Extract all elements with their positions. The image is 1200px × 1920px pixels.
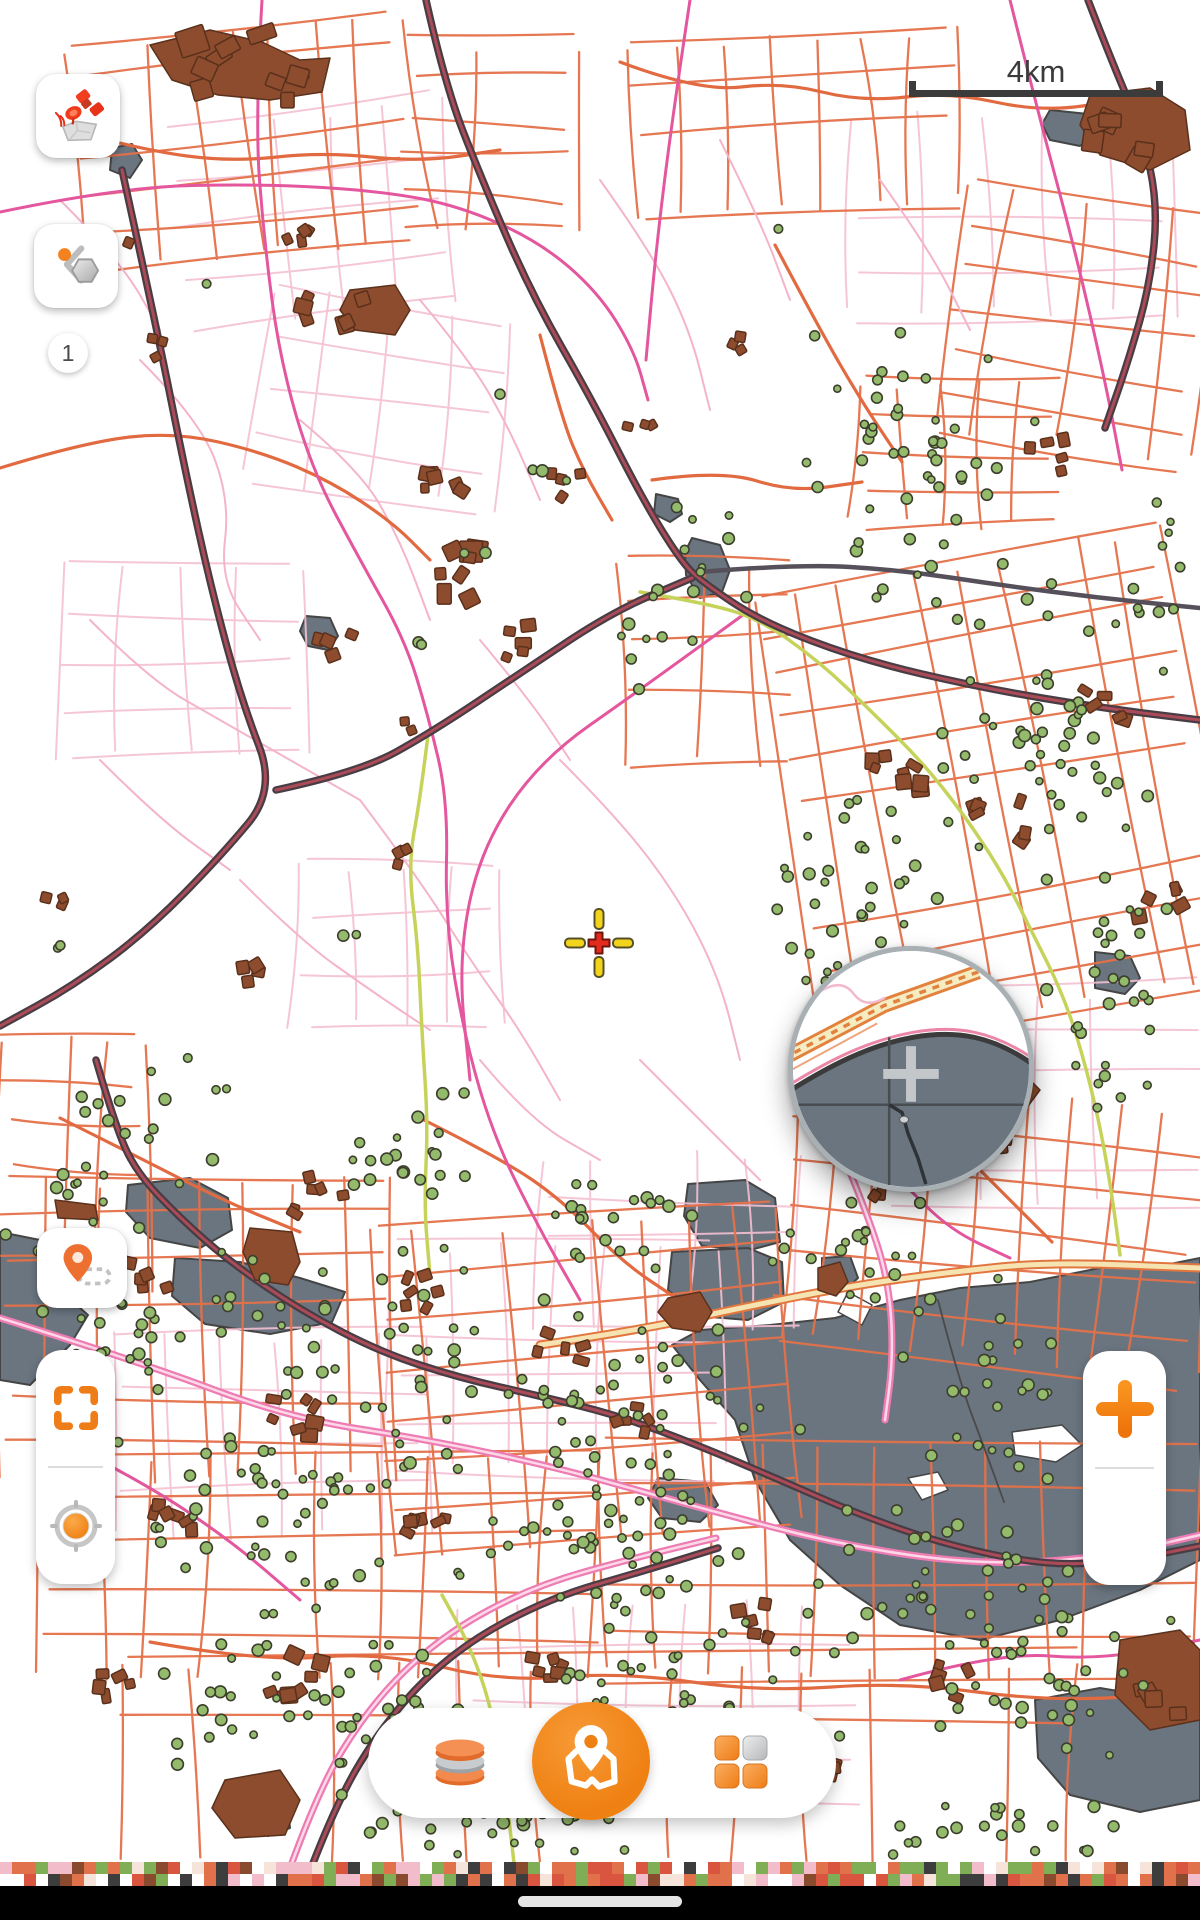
draw-geometry-button[interactable] xyxy=(34,224,118,308)
data-layers-button[interactable] xyxy=(430,1733,490,1793)
loupe-content xyxy=(790,948,1032,1190)
select-area-icon xyxy=(53,1385,99,1431)
data-layers-icon xyxy=(430,1733,490,1791)
home-indicator[interactable] xyxy=(518,1896,682,1907)
grid-apps-button[interactable] xyxy=(712,1734,770,1792)
gps-locate-icon xyxy=(48,1498,104,1554)
map-pin-tool-button[interactable] xyxy=(532,1702,650,1820)
zoom-out-button[interactable] xyxy=(1083,1469,1166,1585)
scale-bar: 4km xyxy=(909,56,1163,97)
pin-route-button[interactable] xyxy=(37,1228,127,1308)
left-tool-pill xyxy=(36,1350,115,1584)
gps-locate-button[interactable] xyxy=(36,1468,115,1584)
bottom-toolbar xyxy=(368,1708,836,1818)
scale-line xyxy=(909,90,1163,97)
satellite-layer-button[interactable] xyxy=(36,74,120,158)
cluster-count-badge[interactable]: 1 xyxy=(48,333,88,373)
select-area-button[interactable] xyxy=(36,1350,115,1466)
map-app-screen: 4km 1 xyxy=(0,0,1200,1920)
scale-label: 4km xyxy=(909,56,1163,88)
map-pin-icon xyxy=(552,1718,630,1804)
zoom-control-pill xyxy=(1083,1351,1166,1585)
cluster-count-label: 1 xyxy=(62,340,75,367)
magnifier-loupe xyxy=(788,946,1034,1192)
minus-icon xyxy=(1096,1498,1154,1556)
zoom-in-button[interactable] xyxy=(1083,1351,1166,1467)
plus-icon xyxy=(1096,1380,1154,1438)
crosshair-target-icon xyxy=(559,903,639,983)
draw-geometry-icon xyxy=(44,234,108,298)
system-navigation-bar xyxy=(0,1886,1200,1920)
map-render-glitch-strip xyxy=(0,1862,1200,1886)
grid-apps-icon xyxy=(713,1734,769,1790)
map-pin-route-icon xyxy=(43,1234,121,1302)
satellite-icon xyxy=(46,84,110,148)
